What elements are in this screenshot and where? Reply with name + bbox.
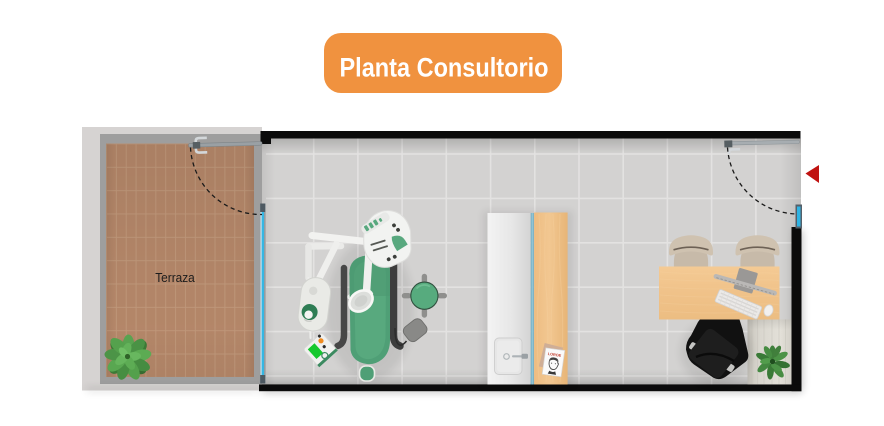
svg-text:Planta Consultorio: Planta Consultorio — [340, 53, 549, 83]
svg-text:Terraza: Terraza — [155, 271, 195, 285]
